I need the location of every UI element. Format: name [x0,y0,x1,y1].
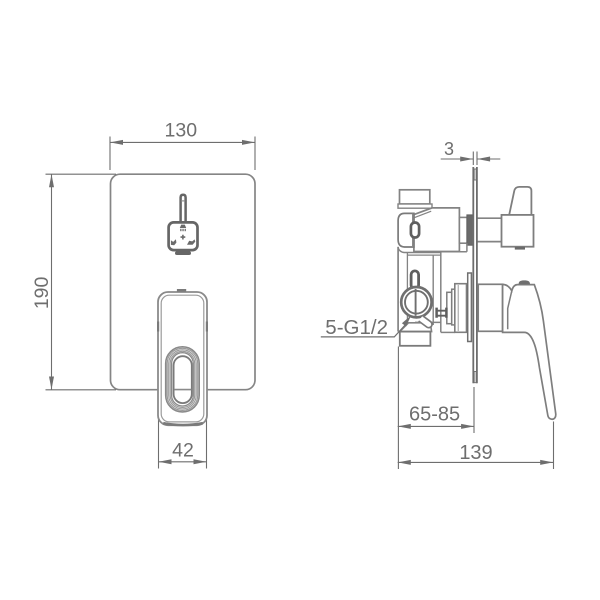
svg-text:3: 3 [444,139,454,159]
svg-text:139: 139 [459,442,492,464]
svg-text:65-85: 65-85 [409,403,460,425]
svg-text:130: 130 [165,120,198,142]
svg-text:42: 42 [172,440,194,462]
svg-text:190: 190 [31,276,53,309]
svg-text:5-G1/2: 5-G1/2 [325,316,388,339]
